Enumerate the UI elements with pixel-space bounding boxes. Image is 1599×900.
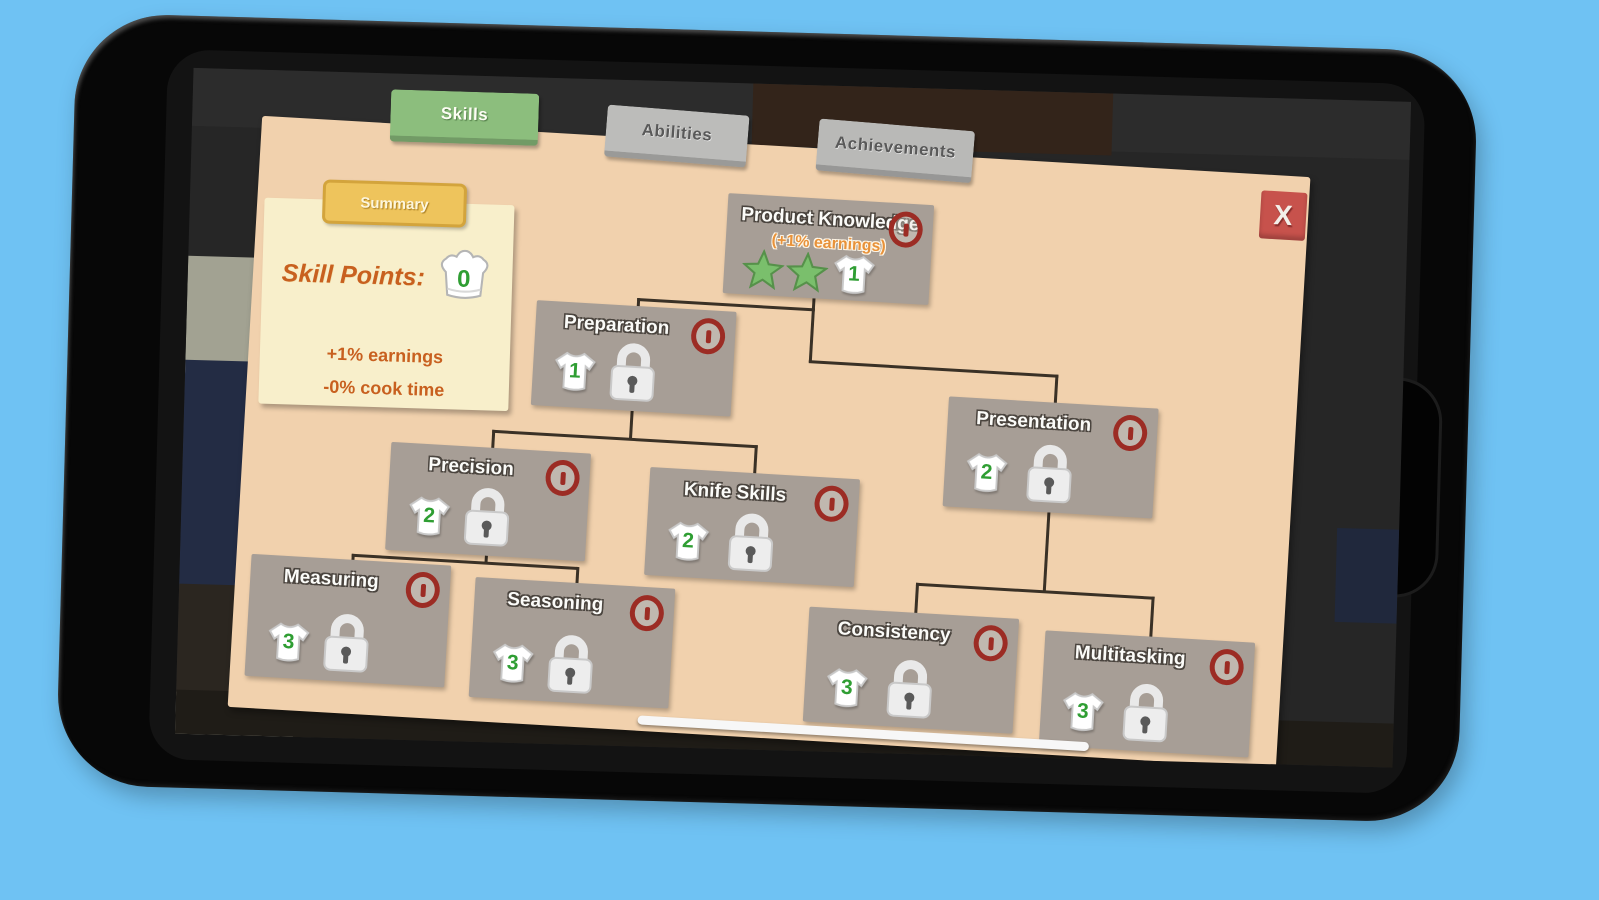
- summary-effect-cooktime: -0% cook time: [258, 369, 509, 410]
- tree-connector: [753, 445, 758, 475]
- skill-node-multitasking[interactable]: Multitasking 3: [1039, 630, 1255, 757]
- tree-connector: [914, 583, 919, 615]
- info-icon[interactable]: [405, 571, 441, 609]
- lock-icon: [456, 484, 518, 551]
- skill-node-preparation[interactable]: Preparation 1: [531, 300, 737, 417]
- skills-panel: Skills Abilities Achievements X Summary …: [228, 116, 1311, 768]
- tree-connector: [492, 430, 758, 449]
- skill-point-cost-icon: 2: [963, 451, 1009, 495]
- tree-connector: [1043, 512, 1051, 592]
- skill-node-title: Multitasking: [1058, 641, 1203, 671]
- skill-point-cost: 1: [552, 358, 597, 385]
- skill-node-measuring[interactable]: Measuring 3: [244, 554, 451, 687]
- tab-skills[interactable]: Skills: [390, 89, 540, 145]
- tree-connector: [1054, 375, 1059, 405]
- star-icon: [785, 251, 829, 295]
- lock-icon: [316, 610, 378, 677]
- skill-point-cost-icon: 3: [824, 667, 870, 711]
- tree-connector: [916, 583, 1155, 600]
- lock-icon: [1019, 441, 1081, 508]
- skill-point-cost-icon: 3: [265, 621, 311, 665]
- skill-node-title: Precision: [404, 453, 539, 483]
- skill-node-knife-skills[interactable]: Knife Skills 2: [644, 467, 860, 587]
- chef-hat-icon: 0: [434, 249, 494, 309]
- skill-node-seasoning[interactable]: Seasoning 3: [469, 577, 676, 708]
- skill-node-precision[interactable]: Precision 2: [385, 442, 591, 562]
- skill-node-product-knowledge[interactable]: Product Knowledge (+1% earnings): [723, 193, 934, 305]
- lock-icon: [720, 509, 782, 576]
- tree-connector: [809, 360, 1059, 378]
- phone-frame: Skills Abilities Achievements X Summary …: [55, 13, 1478, 824]
- info-icon[interactable]: [814, 485, 850, 523]
- game-screen: Skills Abilities Achievements X Summary …: [175, 68, 1411, 768]
- skill-node-title: Knife Skills: [662, 478, 807, 508]
- skill-point-cost: 3: [266, 629, 311, 656]
- page-background: Skills Abilities Achievements X Summary …: [0, 0, 1599, 900]
- skill-point-cost: 3: [490, 650, 535, 677]
- summary-panel: Summary Skill Points: 0 +1% earnings: [258, 198, 514, 412]
- close-button[interactable]: X: [1259, 190, 1308, 241]
- skill-node-title: Measuring: [264, 565, 399, 595]
- skill-node-title: Preparation: [549, 311, 684, 341]
- skill-node-title: Product Knowledge: [741, 204, 882, 234]
- skill-node-consistency[interactable]: Consistency 3: [803, 607, 1019, 734]
- lock-icon: [1115, 680, 1177, 747]
- skill-point-cost-icon: 3: [1060, 691, 1106, 735]
- info-icon[interactable]: [690, 317, 726, 355]
- skill-point-cost: 1: [831, 261, 876, 288]
- lock-icon: [879, 656, 941, 723]
- summary-tab-label: Summary: [322, 179, 467, 227]
- lock-icon: [602, 339, 664, 406]
- skill-point-cost-icon: 1: [831, 253, 877, 297]
- info-icon[interactable]: [1112, 414, 1148, 452]
- skill-node-title: Seasoning: [488, 588, 623, 618]
- tree-connector: [1149, 597, 1154, 639]
- skill-node-title: Consistency: [822, 617, 967, 647]
- skill-point-cost-icon: 2: [406, 495, 452, 539]
- lock-icon: [540, 631, 602, 698]
- info-icon[interactable]: [545, 459, 581, 497]
- tree-connector: [809, 308, 815, 362]
- skill-point-cost: 3: [1060, 698, 1105, 725]
- skill-point-cost-icon: 3: [489, 642, 535, 686]
- skill-point-cost: 2: [964, 459, 1009, 486]
- skill-points-value: 0: [434, 265, 493, 295]
- scene-shadow-right: [1335, 528, 1400, 624]
- info-icon[interactable]: [973, 624, 1009, 662]
- info-icon[interactable]: [629, 594, 665, 632]
- skill-node-title: Presentation: [961, 407, 1106, 437]
- skill-point-cost: 3: [824, 675, 869, 702]
- skill-point-cost-icon: 1: [552, 350, 598, 394]
- skill-node-presentation[interactable]: Presentation 2: [943, 396, 1159, 518]
- skill-point-cost: 2: [406, 503, 451, 530]
- skill-point-cost: 2: [665, 528, 710, 555]
- tree-connector: [629, 411, 634, 440]
- info-icon[interactable]: [1209, 648, 1245, 686]
- skill-points-label: Skill Points:: [281, 259, 425, 292]
- tab-abilities[interactable]: Abilities: [604, 104, 750, 167]
- star-icon: [741, 248, 785, 292]
- skill-point-cost-icon: 2: [665, 520, 711, 564]
